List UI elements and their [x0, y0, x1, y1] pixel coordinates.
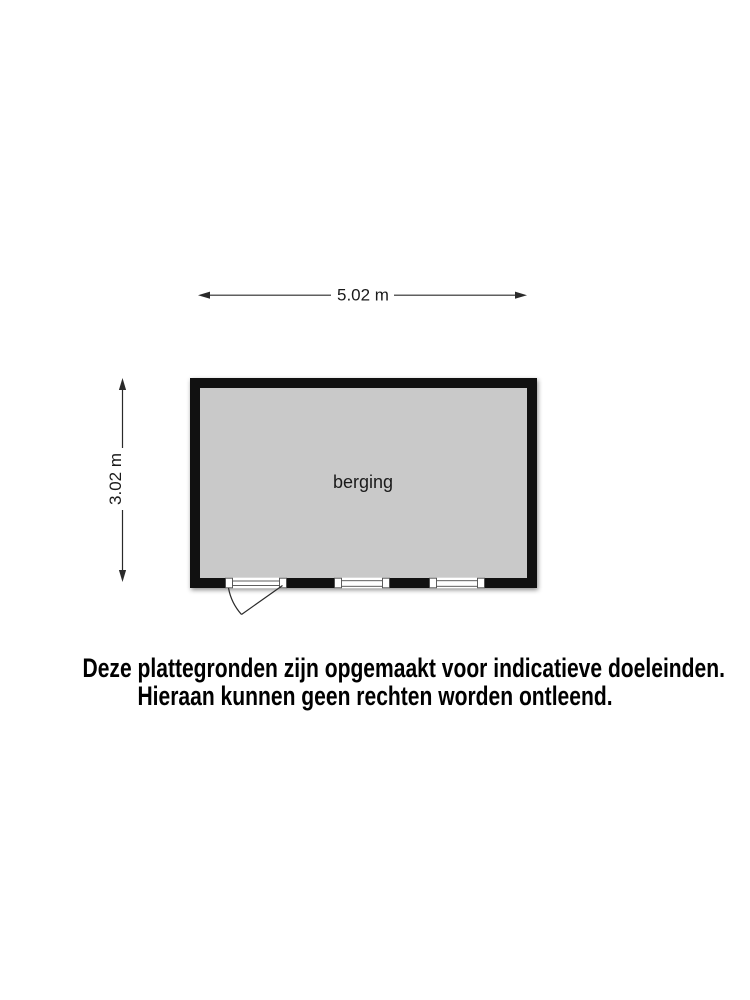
disclaimer-line-2: Hieraan kunnen geen rechten worden ontle… — [83, 682, 668, 710]
room-label: berging — [333, 472, 393, 492]
window-pane — [341, 581, 383, 587]
window-jamb-right — [478, 578, 485, 588]
height-arrowhead-top — [119, 378, 126, 390]
door-leaf — [242, 586, 283, 615]
window-jamb-left — [335, 578, 342, 588]
width-arrowhead-left — [198, 292, 210, 299]
window-pane — [436, 581, 478, 587]
window-2 — [430, 578, 485, 589]
disclaimer-line-1: Deze plattegronden zijn opgemaakt voor i… — [83, 654, 668, 682]
door — [226, 578, 287, 615]
door-threshold — [233, 581, 281, 586]
door-swing-arc — [229, 588, 242, 615]
width-arrowhead-right — [515, 292, 527, 299]
door-jamb-left — [226, 578, 233, 588]
floor-plan-canvas: 5.02 m 3.02 m — [0, 0, 750, 1000]
width-dimension: 5.02 m — [198, 286, 527, 305]
height-arrowhead-bottom — [119, 570, 126, 582]
window-jamb-right — [383, 578, 390, 588]
width-dimension-label: 5.02 m — [337, 286, 389, 305]
window-jamb-left — [430, 578, 437, 588]
height-dimension-label: 3.02 m — [106, 453, 125, 505]
window-1 — [335, 578, 390, 589]
height-dimension: 3.02 m — [106, 378, 126, 582]
disclaimer: Deze plattegronden zijn opgemaakt voor i… — [0, 654, 750, 710]
floor-plan-page: 5.02 m 3.02 m — [0, 0, 750, 1000]
